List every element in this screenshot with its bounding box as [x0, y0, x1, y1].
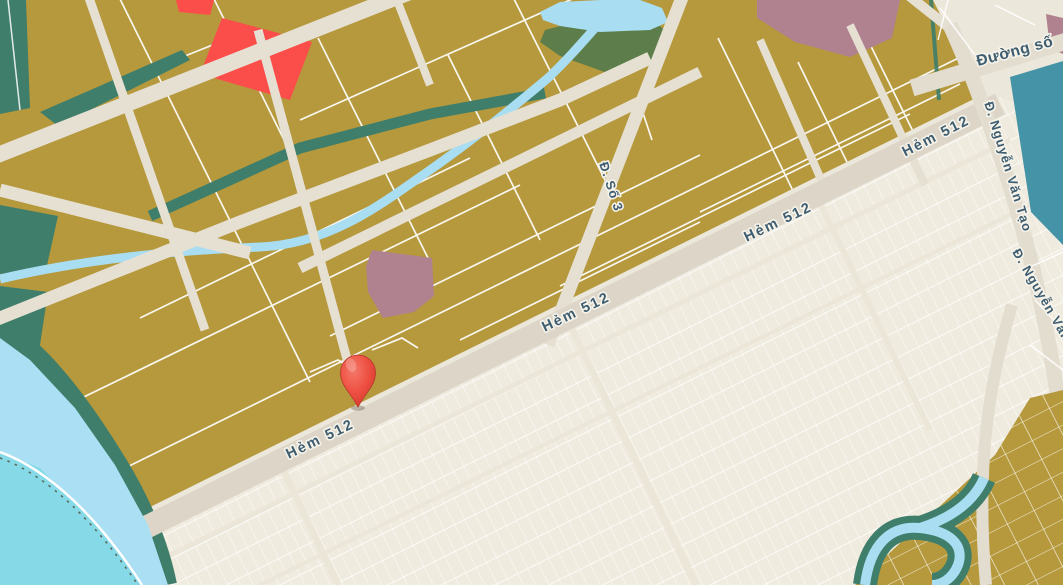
green-zone-top-left: [0, 0, 30, 114]
map-canvas[interactable]: Hẻm 512 Hẻm 512 Hẻm 512 Hẻm 512 Đ. Số 3 …: [0, 0, 1063, 585]
